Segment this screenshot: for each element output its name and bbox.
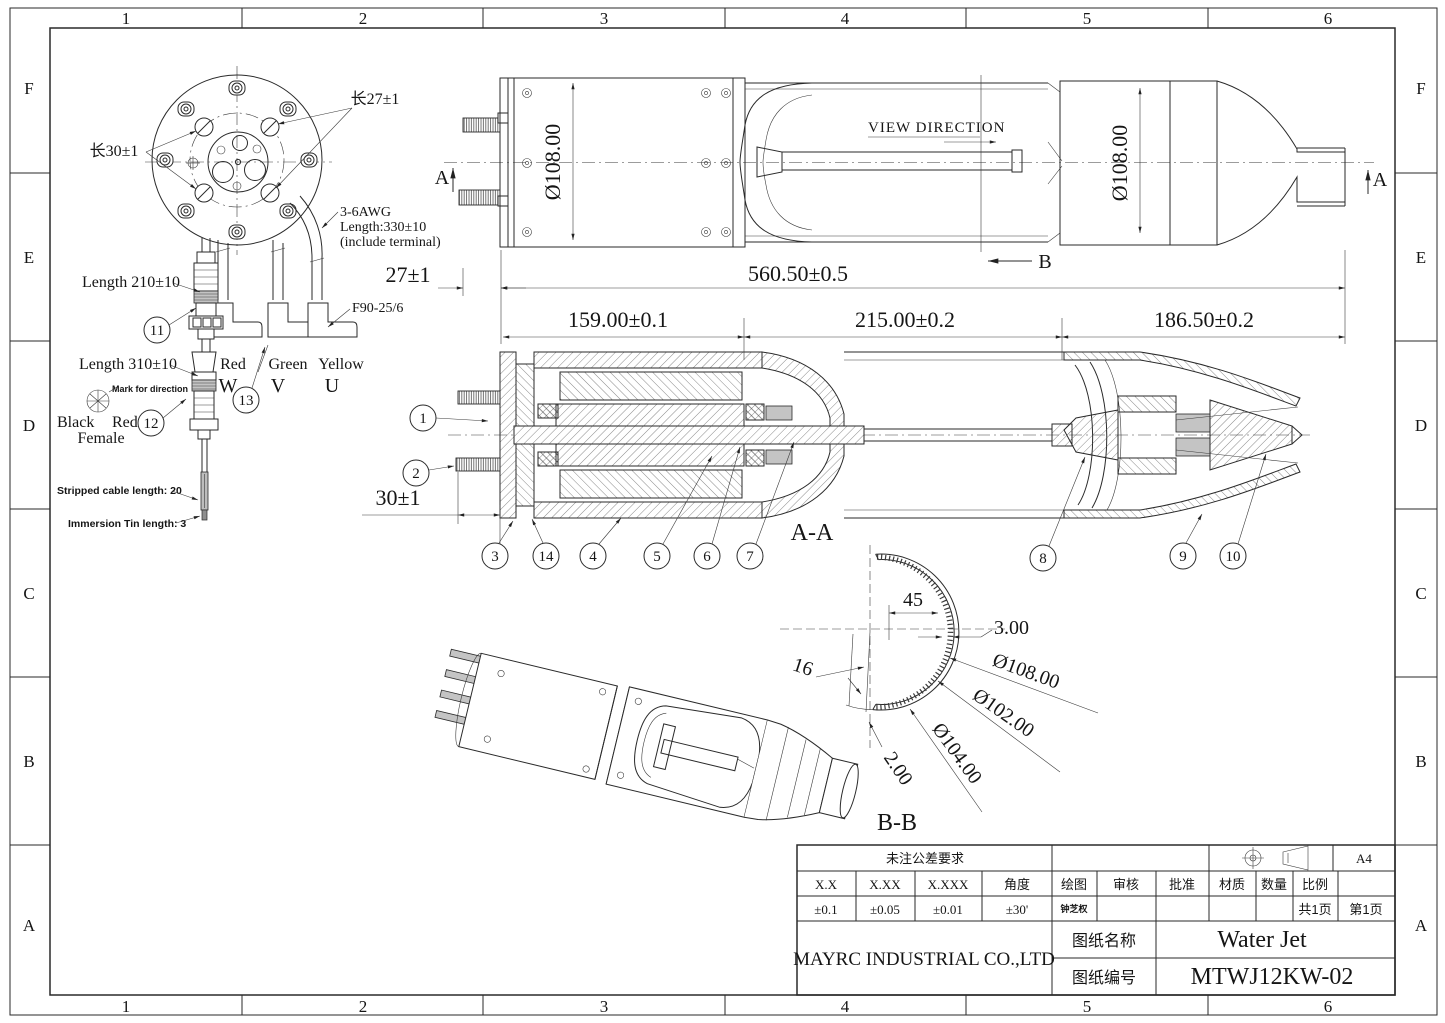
- label-awg: 3-6AWG: [340, 205, 391, 220]
- tb-col-xxxx: X.XXX: [928, 877, 969, 892]
- tb-col-material: 材质: [1219, 877, 1245, 892]
- tb-col-qty: 数量: [1261, 877, 1287, 892]
- zone-col: 1: [122, 9, 131, 28]
- tb-val-xxxx: ±0.01: [933, 902, 963, 917]
- svg-text:7: 7: [746, 549, 754, 565]
- svg-text:8: 8: [1039, 551, 1047, 567]
- zone-col: 1: [122, 997, 131, 1016]
- dim-dia108-right: Ø108.00: [1107, 125, 1132, 201]
- zone-row: E: [1416, 248, 1426, 267]
- zone-col: 5: [1083, 997, 1092, 1016]
- section-b-mark: B: [1038, 251, 1051, 273]
- tb-no-value: MTWJ12KW-02: [1191, 964, 1354, 990]
- dim-bb-45: 45: [903, 589, 923, 611]
- balloon-12-label: 12: [144, 416, 159, 432]
- tb-col-xxx: X.XX: [869, 877, 901, 892]
- label-mark-direction: Mark for direction: [112, 384, 188, 394]
- balloon-11-label: 11: [150, 323, 164, 339]
- tb-val-angle: ±30': [1006, 902, 1028, 917]
- label-phase-u: U: [325, 375, 340, 397]
- label-length210: Length 210±10: [82, 274, 180, 291]
- tb-page-no: 第1页: [1349, 902, 1382, 917]
- section-a-right: A: [1373, 169, 1388, 191]
- dim-bb-102: Ø102.00: [969, 684, 1039, 742]
- section-a-left: A: [435, 167, 450, 189]
- section-aa-view: 30±1 A-A 1 2 3 14 4 5 6 7 8 9 10: [362, 352, 1310, 571]
- flange-cable-view: 长27±1 长30±1 3-6AWG Length:330±10 (includ…: [57, 66, 441, 530]
- tb-name-label: 图纸名称: [1072, 932, 1136, 950]
- zone-col: 3: [600, 997, 609, 1016]
- tb-col-approve: 批准: [1169, 877, 1195, 892]
- balloon-11: 11: [144, 308, 196, 343]
- cable-lug: [308, 303, 357, 337]
- dim-560: 560.50±0.5: [748, 261, 848, 286]
- dim-bb-104: Ø104.00: [928, 719, 987, 788]
- label-phase-v: V: [271, 375, 286, 397]
- tb-name-value: Water Jet: [1217, 927, 1307, 953]
- tb-no-label: 图纸编号: [1072, 969, 1136, 987]
- dim-215: 215.00±0.2: [855, 307, 955, 332]
- zone-row: F: [24, 79, 33, 98]
- drawing-sheet: 1 2 3 4 5 6 1 2 3 4 5 6 F E D C B A F E …: [0, 0, 1445, 1023]
- label-female: Female: [77, 430, 124, 447]
- tb-col-scale: 比例: [1302, 877, 1328, 892]
- zone-col: 6: [1324, 997, 1333, 1016]
- label-wire-green: Green: [268, 356, 307, 373]
- zone-col: 4: [841, 997, 850, 1016]
- balloon-13-label: 13: [239, 393, 254, 409]
- label-stripped: Stripped cable length: 20: [57, 485, 182, 497]
- dim-30: 30±1: [375, 485, 420, 510]
- side-elevation-view: VIEW DIRECTION Ø108.00 Ø108.00 A A B: [435, 75, 1388, 273]
- dim-dia108-left: Ø108.00: [540, 124, 565, 200]
- label-f90: F90-25/6: [352, 301, 403, 316]
- dim-27: 27±1: [385, 262, 430, 287]
- tb-col-draw: 绘图: [1061, 877, 1087, 892]
- tb-pages-total: 共1页: [1298, 902, 1331, 917]
- zone-row: D: [23, 416, 35, 435]
- tb-sheet-size: A4: [1356, 851, 1372, 866]
- label-wire-yellow: Yellow: [318, 356, 364, 373]
- label-awg-length: Length:330±10: [340, 220, 426, 235]
- svg-text:6: 6: [703, 549, 711, 565]
- balloon-4: 4: [580, 518, 621, 569]
- zone-row: F: [1416, 79, 1425, 98]
- dim-186: 186.50±0.2: [1154, 307, 1254, 332]
- zone-row: B: [1415, 752, 1426, 771]
- zone-col: 5: [1083, 9, 1092, 28]
- zone-row: D: [1415, 416, 1427, 435]
- tb-col-check: 审核: [1113, 877, 1139, 892]
- tb-val-xxx: ±0.05: [870, 902, 900, 917]
- section-bb-label: B-B: [877, 810, 917, 836]
- section-aa-label: A-A: [791, 520, 834, 546]
- dim-bb-3: 3.00: [994, 617, 1029, 639]
- svg-text:4: 4: [589, 549, 597, 565]
- zone-row: E: [24, 248, 34, 267]
- label-len30: 长30±1: [90, 142, 139, 160]
- label-immersion: Immersion Tin length: 3: [68, 518, 186, 530]
- stud: [459, 190, 500, 205]
- zone-row: A: [23, 916, 36, 935]
- tb-val-xx: ±0.1: [814, 902, 837, 917]
- dim-bb-108: Ø108.00: [990, 649, 1063, 693]
- dim-159: 159.00±0.1: [568, 307, 668, 332]
- balloon-1: 1: [410, 405, 488, 431]
- zone-col: 2: [359, 9, 368, 28]
- balloon-9: 9: [1170, 514, 1202, 569]
- engineering-drawing-canvas: 1 2 3 4 5 6 1 2 3 4 5 6 F E D C B A F E …: [0, 0, 1445, 1023]
- label-wire-red: Red: [220, 356, 246, 373]
- svg-text:10: 10: [1226, 549, 1241, 565]
- zone-row: B: [23, 752, 34, 771]
- zone-row: C: [23, 584, 34, 603]
- signal-connector-lower: [190, 339, 218, 520]
- nozzle-profile: [1060, 81, 1345, 245]
- balloon-14: 14: [532, 519, 559, 569]
- projection-symbol-icon: [1242, 846, 1308, 870]
- title-block: 未注公差要求 A4 X.X X.XX X.XXX 角度 绘图 审核 批准 材质 …: [793, 845, 1395, 995]
- balloon-12: 12: [138, 399, 186, 436]
- view-direction-label: VIEW DIRECTION: [868, 120, 1005, 136]
- label-awg-terminal: (include terminal): [340, 235, 441, 250]
- tb-company: MAYRC INDUSTRIAL CO.,LTD: [793, 949, 1055, 970]
- label-len27: 长27±1: [351, 90, 400, 108]
- svg-text:2: 2: [412, 466, 420, 482]
- balloon-3: 3: [482, 521, 513, 569]
- svg-text:1: 1: [419, 411, 427, 427]
- zone-row: A: [1415, 916, 1428, 935]
- dim-bb-16: 16: [790, 654, 816, 681]
- balloon-10: 10: [1220, 454, 1266, 569]
- zone-col: 2: [359, 997, 368, 1016]
- svg-text:3: 3: [491, 549, 499, 565]
- tb-col-xx: X.X: [815, 877, 838, 892]
- dim-bb-2: 2.00: [879, 748, 917, 789]
- tb-col-angle: 角度: [1004, 877, 1030, 892]
- zone-col: 4: [841, 9, 850, 28]
- dimension-band: 27±1 560.50±0.5 159.00±0.1 215.00±0.2 18…: [385, 250, 1345, 360]
- zone-col: 6: [1324, 9, 1333, 28]
- stud: [463, 118, 500, 132]
- label-red: Red: [112, 414, 138, 431]
- svg-text:14: 14: [539, 549, 555, 565]
- tb-drawer-signature: 钟芝权: [1060, 903, 1088, 914]
- zone-row: C: [1415, 584, 1426, 603]
- zone-col: 3: [600, 9, 609, 28]
- label-length310: Length 310±10: [79, 356, 177, 373]
- balloon-2: 2: [403, 460, 454, 486]
- svg-text:9: 9: [1179, 549, 1187, 565]
- tb-tol-header: 未注公差要求: [886, 851, 964, 866]
- label-black: Black: [57, 414, 94, 431]
- svg-text:5: 5: [653, 549, 661, 565]
